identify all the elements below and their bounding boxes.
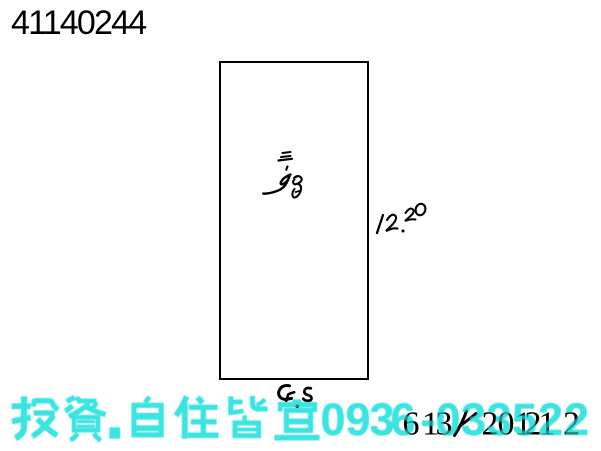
svg-text:0936-033522: 0936-033522 xyxy=(321,394,590,445)
